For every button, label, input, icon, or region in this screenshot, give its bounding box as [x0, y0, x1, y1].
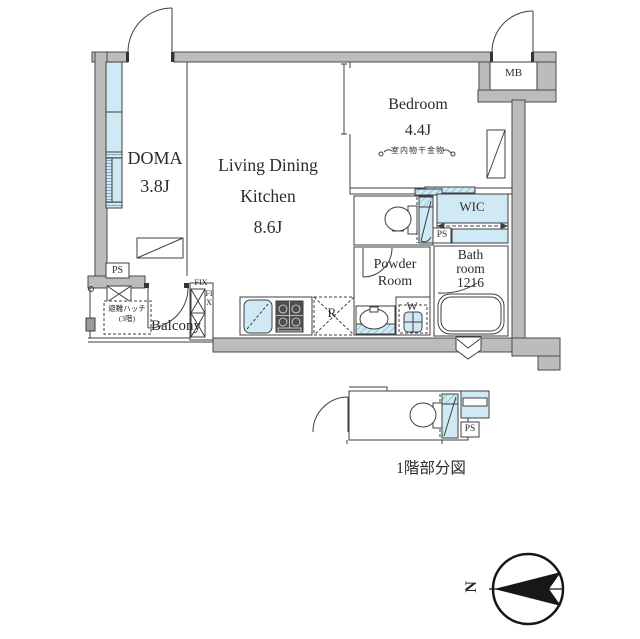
ldk-label-line2: Kitchen [192, 187, 344, 206]
strip-hatch-band-2 [106, 202, 122, 208]
wall-left [95, 52, 107, 286]
mb-jamb-right [531, 52, 534, 62]
entrance-jamb-left [126, 52, 129, 62]
doma-size: 3.8J [110, 177, 200, 197]
wall-bottom-right-2 [538, 356, 560, 370]
wall-bottom-right-1 [512, 338, 560, 356]
doma-area [106, 62, 187, 278]
bedroom-size: 4.4J [357, 122, 479, 140]
entrance-door [128, 8, 172, 52]
bathtub [438, 294, 504, 334]
balcony-jamb-left [144, 283, 149, 288]
wic-label: WIC [439, 200, 505, 214]
floor-plan-page: DOMA 3.8J Living Dining Kitchen 8.6J Bed… [0, 0, 640, 639]
bathroom-size: 1216 [435, 276, 506, 291]
bedroom-label: Bedroom [357, 96, 479, 114]
toilet-room [354, 189, 442, 245]
wall-top-main [174, 52, 492, 62]
ldk-size: 8.6J [192, 218, 344, 237]
meter-box-label: MB [492, 67, 535, 79]
ps-label-f1: PS [461, 424, 479, 434]
compass [489, 554, 563, 624]
balcony-pipe-box [86, 318, 95, 331]
laundry-fitting-note: 室内物干金物 [360, 147, 476, 156]
wall-mb-left [479, 62, 490, 90]
wic-lower-shelf [452, 229, 508, 243]
entrance-jamb-right [171, 52, 174, 62]
ps-label-wic: PS [433, 230, 451, 240]
first-floor-caption: 1階部分図 [368, 460, 494, 477]
wall-top-right [533, 52, 556, 62]
wall-mb-right [537, 62, 556, 90]
refrigerator-label: R [321, 306, 343, 320]
ps-label-doma: PS [107, 265, 128, 276]
evacuation-hatch-label-line2: (3階) [102, 315, 152, 323]
powder-room-label-line2: Room [357, 274, 433, 289]
fix-label-vertical: FIX [204, 290, 214, 307]
compass-north-label: N [463, 577, 481, 597]
faucet [370, 307, 378, 312]
f1-door-arc [313, 397, 348, 432]
toilet-bowl [385, 207, 411, 231]
washer-label: W [401, 300, 423, 313]
mb-door-arc [492, 11, 533, 52]
entrance-door-arc [128, 8, 172, 52]
evacuation-hatch-label-line1: 避難ハッチ [102, 305, 152, 313]
powder-room-label-line1: Powder [357, 257, 433, 272]
doma-label: DOMA [110, 149, 200, 169]
mb-jamb-left [490, 52, 493, 62]
ldk-label-line1: Living Dining [192, 156, 344, 175]
wall-right [512, 100, 525, 342]
floor-plan-drawing [0, 0, 640, 639]
f1-toilet-bowl [410, 403, 436, 427]
fix-label-horizontal: FIX [188, 279, 214, 288]
first-floor-partial-plan [313, 387, 489, 444]
